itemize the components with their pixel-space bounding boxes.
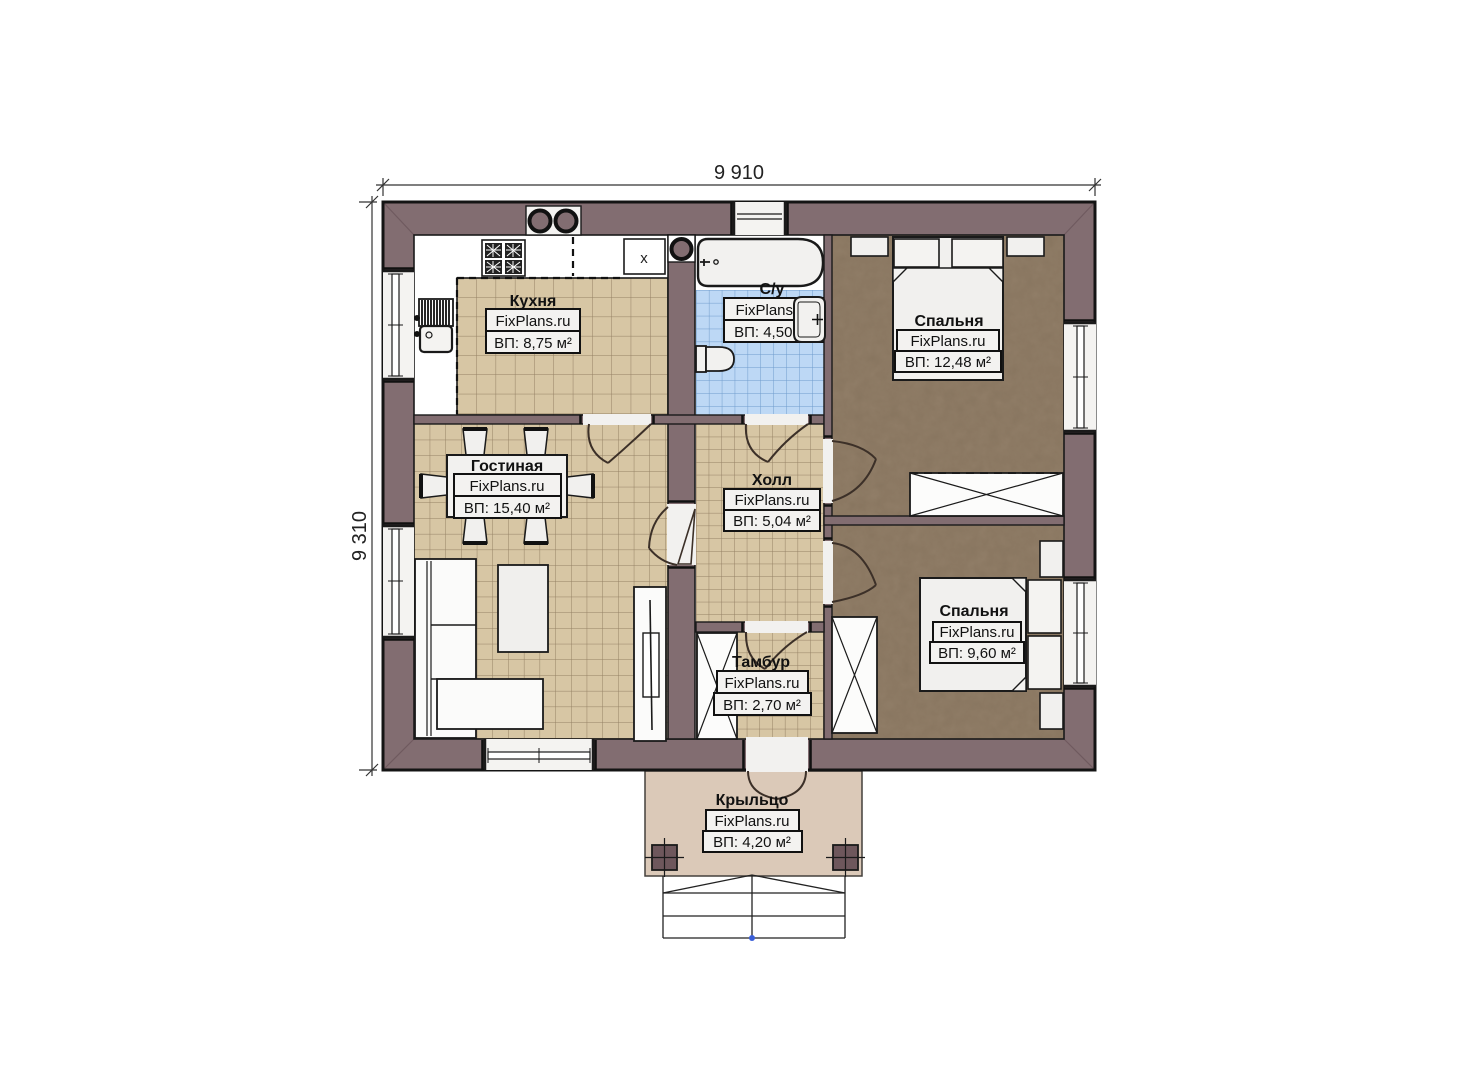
svg-text:FixPlans.ru: FixPlans.ru [724,675,799,692]
svg-text:Спальня: Спальня [914,313,983,330]
svg-text:FixPlans.ru: FixPlans.ru [734,492,809,509]
svg-text:Спальня: Спальня [939,603,1008,620]
svg-text:ВП: 5,04 м²: ВП: 5,04 м² [733,513,811,530]
svg-text:Гостиная: Гостиная [471,458,543,475]
svg-text:FixPlans.ru: FixPlans.ru [714,813,789,830]
svg-text:ВП: 15,40 м²: ВП: 15,40 м² [464,500,550,517]
svg-text:x: x [640,250,648,267]
svg-text:Холл: Холл [752,472,792,489]
svg-text:Кухня: Кухня [510,293,557,310]
svg-text:9 910: 9 910 [714,162,764,184]
svg-text:Крыльцо: Крыльцо [716,792,789,809]
svg-text:Тамбур: Тамбур [732,654,790,671]
svg-text:9 310: 9 310 [349,511,371,561]
svg-text:ВП: 2,70 м²: ВП: 2,70 м² [723,697,801,714]
svg-text:FixPlans.ru: FixPlans.ru [469,478,544,495]
svg-text:FixPlans.ru: FixPlans.ru [495,313,570,330]
svg-text:С/у: С/у [760,281,785,298]
svg-text:ВП: 8,75 м²: ВП: 8,75 м² [494,335,572,352]
svg-text:ВП: 12,48 м²: ВП: 12,48 м² [905,354,991,371]
svg-text:ВП: 4,20 м²: ВП: 4,20 м² [713,834,791,851]
svg-text:FixPlans.ru: FixPlans.ru [939,624,1014,641]
svg-text:FixPlans.ru: FixPlans.ru [910,333,985,350]
svg-text:ВП: 9,60 м²: ВП: 9,60 м² [938,645,1016,662]
